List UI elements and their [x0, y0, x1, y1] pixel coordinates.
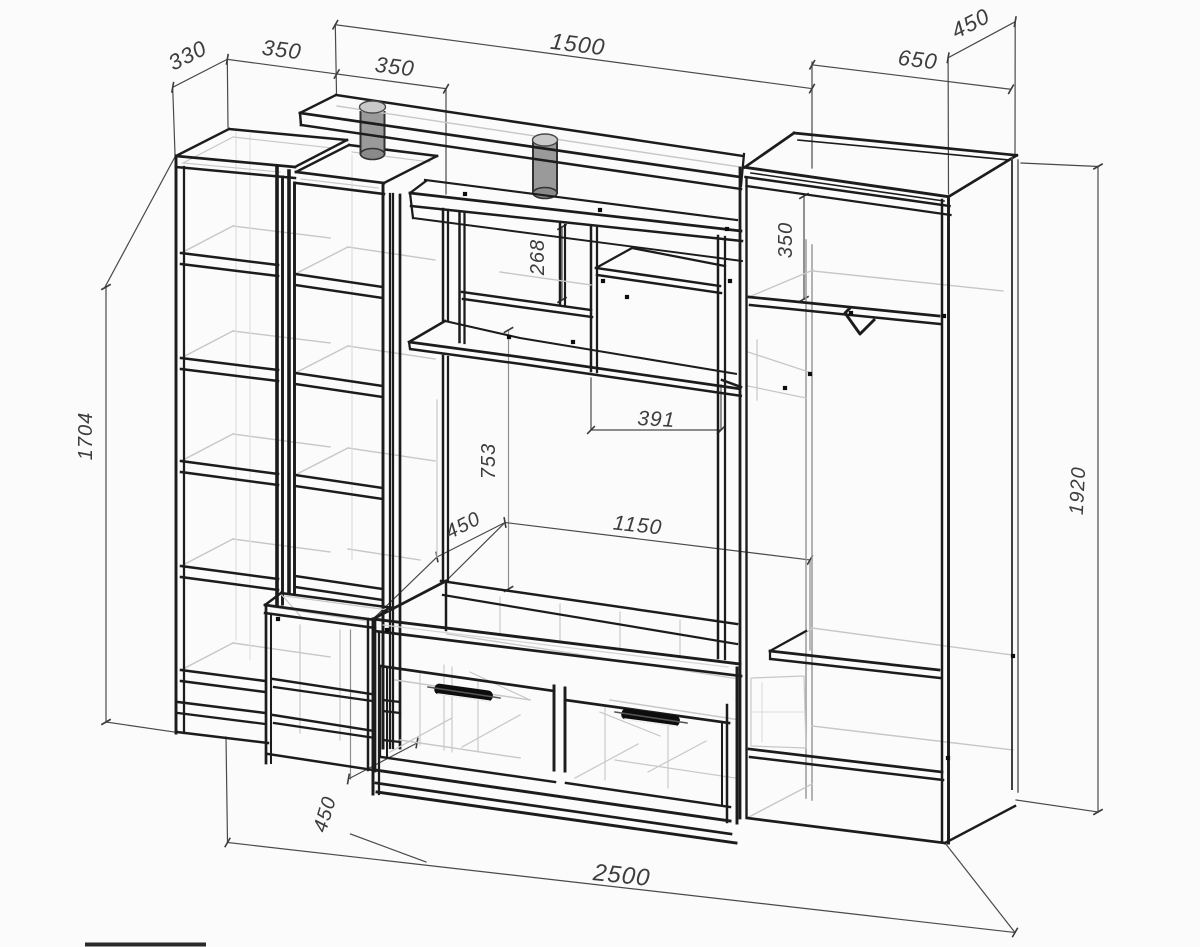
svg-text:268: 268 [527, 239, 549, 276]
svg-text:350: 350 [261, 35, 303, 65]
svg-text:650: 650 [897, 45, 939, 75]
svg-text:350: 350 [374, 52, 416, 82]
svg-text:1920: 1920 [1066, 466, 1091, 516]
svg-text:1704: 1704 [75, 412, 97, 461]
svg-text:753: 753 [478, 443, 500, 479]
svg-text:391: 391 [637, 407, 676, 432]
svg-text:350: 350 [775, 222, 797, 258]
